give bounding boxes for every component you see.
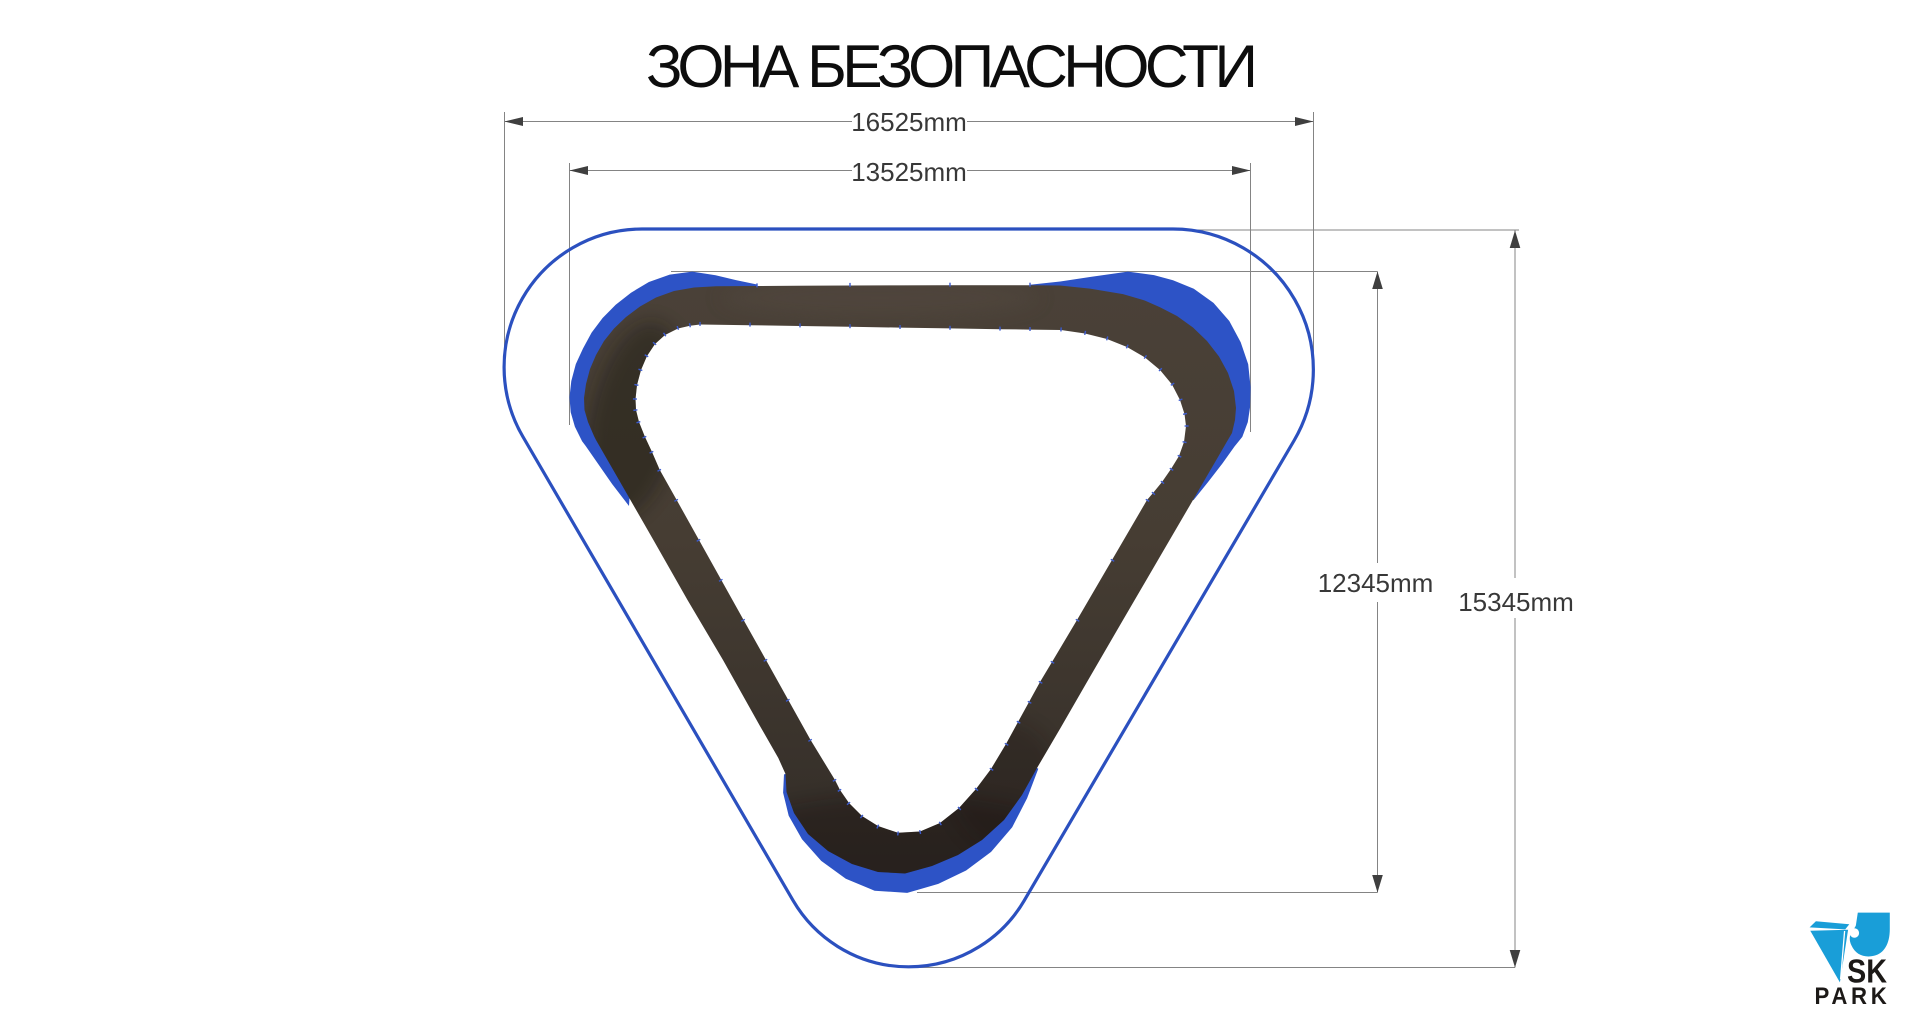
svg-text:PARK: PARK	[1815, 983, 1891, 1010]
svg-text:15345mm: 15345mm	[1458, 587, 1574, 617]
svg-text:12345mm: 12345mm	[1318, 568, 1434, 598]
svg-text:16525mm: 16525mm	[851, 107, 967, 137]
svg-text:13525mm: 13525mm	[851, 157, 967, 187]
svg-text:ЗОНА БЕЗОПАСНОСТИ: ЗОНА БЕЗОПАСНОСТИ	[646, 32, 1258, 100]
